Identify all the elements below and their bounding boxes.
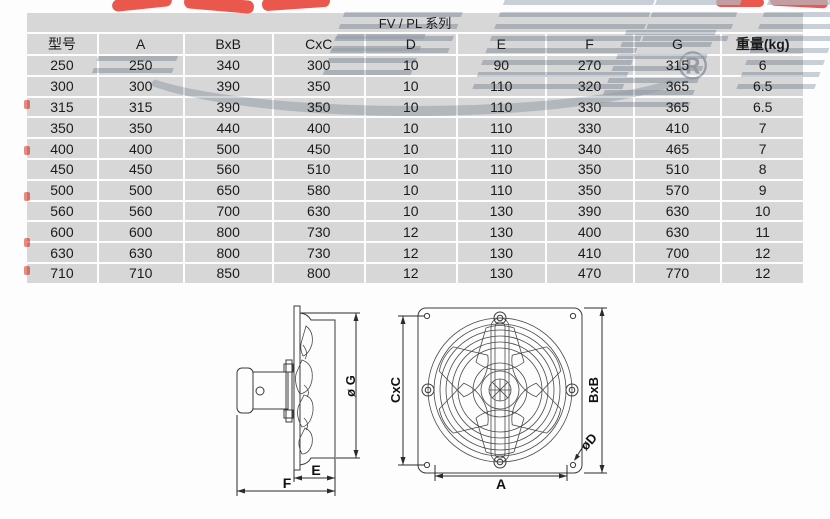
table-cell: 450	[99, 160, 183, 179]
table-cell: 110	[458, 139, 545, 158]
table-cell: 9	[722, 181, 803, 200]
series-title: FV / PL 系列	[27, 13, 803, 32]
table-cell: 315	[27, 98, 97, 117]
table-cell: 365	[635, 98, 721, 117]
table-cell: 130	[458, 264, 545, 283]
table-cell: 730	[274, 222, 364, 241]
table-cell: 630	[635, 222, 721, 241]
table-row: 6006008007301213040063011	[27, 222, 803, 241]
table-cell: 770	[635, 264, 721, 283]
table-cell: 10	[366, 202, 456, 221]
dim-label-g: ø G	[343, 375, 358, 397]
table-cell: 10	[366, 77, 456, 96]
mounting-plate-side	[294, 306, 335, 470]
column-header-model: 型号	[27, 34, 97, 54]
table-cell: 440	[185, 118, 272, 137]
table-cell: 340	[185, 56, 272, 75]
table-cell: 630	[635, 202, 721, 221]
table-cell: 510	[274, 160, 364, 179]
table-cell: 510	[635, 160, 721, 179]
table-cell: 110	[458, 160, 545, 179]
table-cell: 315	[635, 56, 721, 75]
column-header-e: E	[458, 34, 545, 54]
table-cell: 630	[274, 202, 364, 221]
corner-hole	[424, 313, 429, 318]
column-header-d: D	[366, 34, 456, 54]
table-cell: 800	[185, 222, 272, 241]
table-cell: 270	[547, 56, 633, 75]
table-cell: 90	[458, 56, 545, 75]
table-title-row: FV / PL 系列	[27, 13, 803, 32]
table-cell: 470	[547, 264, 633, 283]
table-cell: 250	[99, 56, 183, 75]
table-cell: 8	[722, 160, 803, 179]
table-cell: 500	[27, 181, 97, 200]
corner-hole	[570, 462, 575, 467]
column-header-g: G	[635, 34, 721, 54]
table-cell: 6	[722, 56, 803, 75]
table-cell: 6.5	[722, 98, 803, 117]
dim-label-f: F	[283, 475, 292, 491]
table-cell: 560	[185, 160, 272, 179]
table-cell: 465	[635, 139, 721, 158]
table-cell: 730	[274, 243, 364, 262]
column-header-cxc: CxC	[274, 34, 364, 54]
table-cell: 10	[366, 139, 456, 158]
table-cell: 410	[635, 118, 721, 137]
table-cell: 400	[274, 118, 364, 137]
table-cell: 330	[547, 118, 633, 137]
table-cell: 11	[722, 222, 803, 241]
table-row: 5605607006301013039063010	[27, 202, 803, 221]
table-row: 25025034030010902703156	[27, 56, 803, 75]
table-cell: 500	[99, 181, 183, 200]
table-cell: 600	[99, 222, 183, 241]
table-cell: 315	[99, 98, 183, 117]
table-cell: 560	[99, 202, 183, 221]
table-cell: 400	[547, 222, 633, 241]
table-row: 500500650580101103505709	[27, 181, 803, 200]
table-row: 350350440400101103304107	[27, 118, 803, 137]
table-cell: 630	[27, 243, 97, 262]
table-cell: 7	[722, 118, 803, 137]
table-cell: 110	[458, 98, 545, 117]
dim-label-a: A	[496, 476, 506, 492]
table-cell: 390	[547, 202, 633, 221]
table-cell: 650	[185, 181, 272, 200]
dimension-cxc: CxC	[388, 316, 424, 465]
table-cell: 400	[27, 139, 97, 158]
table-cell: 365	[635, 77, 721, 96]
corner-hole	[570, 313, 575, 318]
column-header-weight: 重量(kg)	[722, 34, 803, 54]
table-cell: 110	[458, 118, 545, 137]
dimension-f: F	[237, 415, 335, 496]
table-cell: 320	[547, 77, 633, 96]
table-cell: 350	[99, 118, 183, 137]
table-cell: 130	[458, 202, 545, 221]
table-row: 6306308007301213041070012	[27, 243, 803, 262]
table-cell: 450	[274, 139, 364, 158]
table-row: 315315390350101103303656.5	[27, 98, 803, 117]
front-view-drawing: CxC BxB A øD	[388, 293, 623, 519]
table-row: 300300390350101103203656.5	[27, 77, 803, 96]
table-cell: 12	[366, 243, 456, 262]
hub	[473, 363, 527, 417]
table-cell: 630	[99, 243, 183, 262]
table-row: 450450560510101103505108	[27, 160, 803, 179]
table-cell: 350	[274, 77, 364, 96]
table-cell: 350	[27, 118, 97, 137]
table-cell: 130	[458, 222, 545, 241]
table-cell: 10	[366, 118, 456, 137]
table-cell: 350	[547, 181, 633, 200]
motor	[237, 368, 288, 413]
dim-label-cxc: CxC	[388, 376, 403, 403]
table-cell: 700	[185, 202, 272, 221]
table-cell: 300	[99, 77, 183, 96]
table-cell: 12	[366, 264, 456, 283]
dim-label-e: E	[311, 462, 320, 478]
table-cell: 700	[635, 243, 721, 262]
table-cell: 390	[185, 98, 272, 117]
corner-hole	[424, 462, 429, 467]
table-cell: 6.5	[722, 77, 803, 96]
table-cell: 710	[27, 264, 97, 283]
table-cell: 330	[547, 98, 633, 117]
table-cell: 580	[274, 181, 364, 200]
dimension-a: A	[435, 465, 567, 492]
column-header-a: A	[99, 34, 183, 54]
spec-table: FV / PL 系列 型号 A BxB CxC D E F G 重量(kg) 2…	[25, 11, 805, 285]
column-header-bxb: BxB	[185, 34, 272, 54]
table-cell: 350	[547, 160, 633, 179]
table-cell: 350	[274, 98, 364, 117]
table-body: 2502503403001090270315630030039035010110…	[27, 56, 803, 283]
table-row: 7107108508001213047077012	[27, 264, 803, 283]
table-cell: 110	[458, 77, 545, 96]
table-header-row: 型号 A BxB CxC D E F G 重量(kg)	[27, 34, 803, 54]
table-cell: 10	[366, 98, 456, 117]
fan-datasheet: ® FV / PL 系列 型号 A BxB CxC D E	[0, 0, 830, 519]
spec-table-wrap: FV / PL 系列 型号 A BxB CxC D E F G 重量(kg) 2…	[25, 11, 805, 285]
impeller-blades-side	[296, 326, 314, 454]
table-row: 400400500450101103404657	[27, 139, 803, 158]
table-cell: 500	[185, 139, 272, 158]
table-cell: 10	[366, 160, 456, 179]
table-cell: 390	[185, 77, 272, 96]
table-cell: 800	[274, 264, 364, 283]
table-cell: 12	[722, 264, 803, 283]
table-cell: 570	[635, 181, 721, 200]
table-cell: 300	[274, 56, 364, 75]
table-cell: 600	[27, 222, 97, 241]
column-header-f: F	[547, 34, 633, 54]
table-cell: 7	[722, 139, 803, 158]
table-cell: 110	[458, 181, 545, 200]
table-cell: 800	[185, 243, 272, 262]
table-cell: 410	[547, 243, 633, 262]
table-cell: 850	[185, 264, 272, 283]
dimension-d: øD	[574, 430, 600, 461]
table-cell: 10	[366, 56, 456, 75]
table-cell: 12	[722, 243, 803, 262]
table-cell: 12	[366, 222, 456, 241]
table-cell: 450	[27, 160, 97, 179]
table-cell: 400	[99, 139, 183, 158]
dim-label-bxb: BxB	[586, 377, 601, 403]
dimension-g: ø G	[301, 313, 360, 458]
table-cell: 560	[27, 202, 97, 221]
table-cell: 300	[27, 77, 97, 96]
table-cell: 130	[458, 243, 545, 262]
table-cell: 250	[27, 56, 97, 75]
side-view-drawing: ø G E F	[190, 300, 375, 519]
table-cell: 10	[722, 202, 803, 221]
table-cell: 10	[366, 181, 456, 200]
table-cell: 710	[99, 264, 183, 283]
table-cell: 340	[547, 139, 633, 158]
